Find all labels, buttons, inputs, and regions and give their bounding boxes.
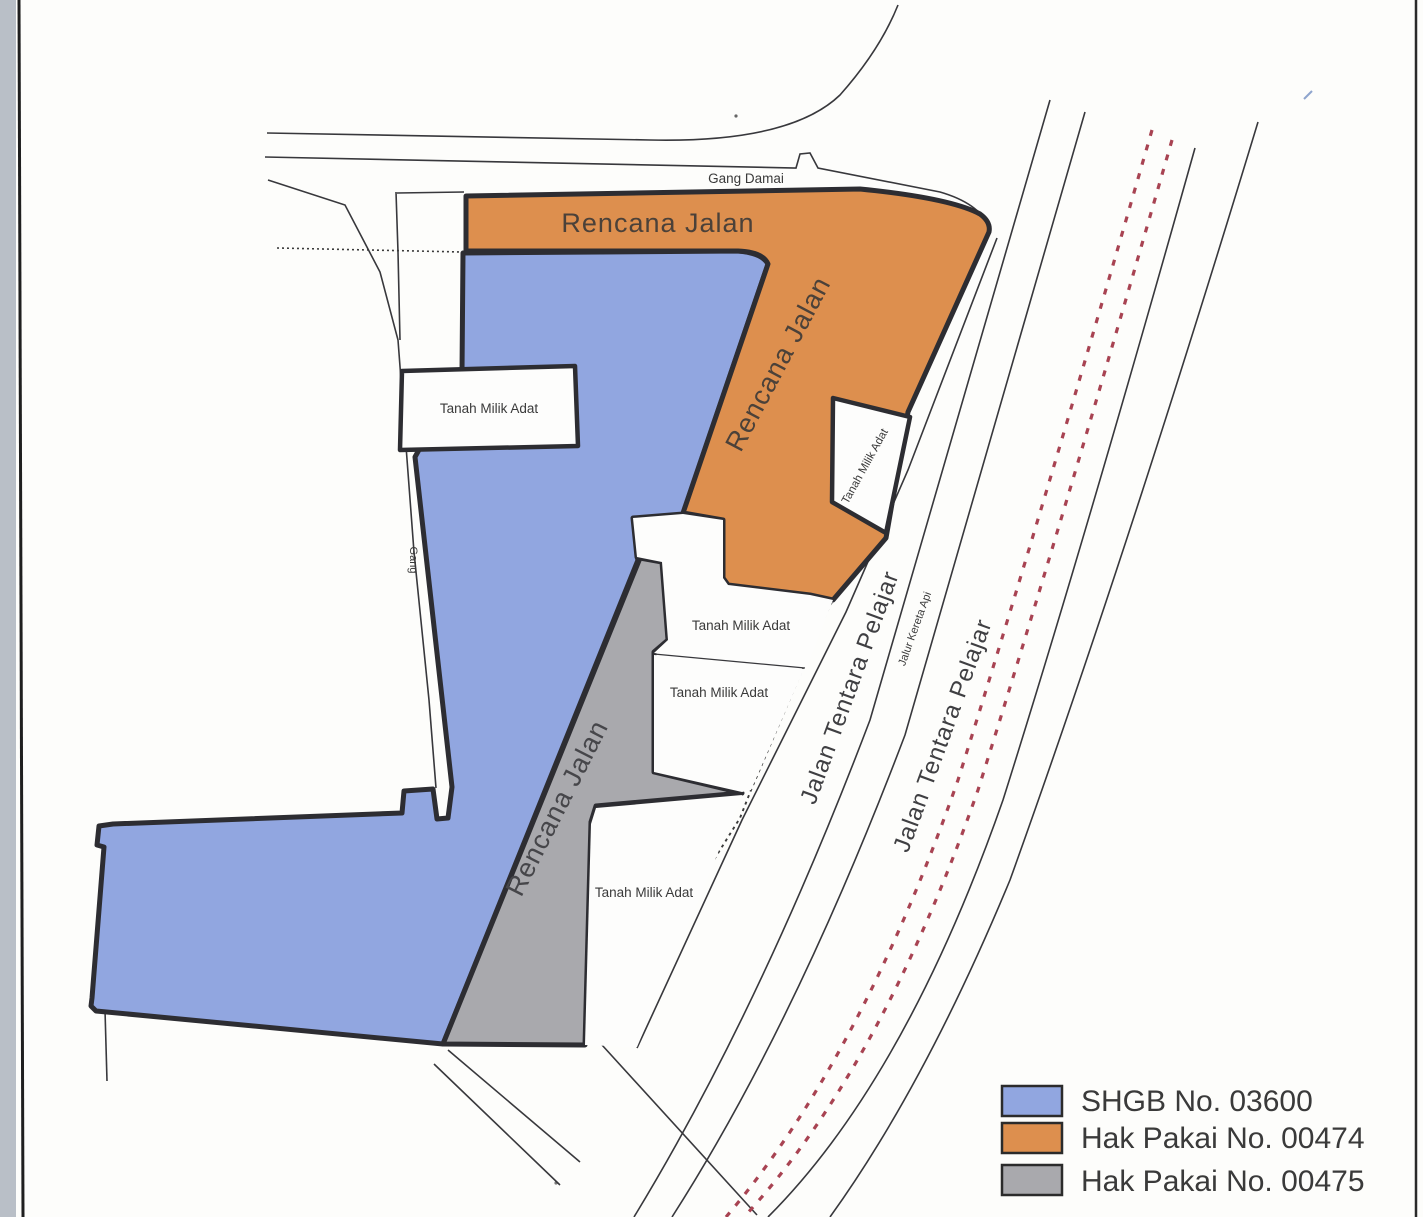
road-connector-line [397, 192, 464, 193]
legend-item-hak-pakai-00475: Hak Pakai No. 00475 [1002, 1165, 1365, 1198]
legend-item-hak-pakai-00474: Hak Pakai No. 00474 [1002, 1122, 1365, 1155]
scan-speck [1304, 91, 1312, 99]
label-gang: Gang [407, 547, 419, 574]
road-gang-west-line [268, 180, 436, 788]
scan-speck [734, 114, 737, 117]
scan-left-line [19, 0, 23, 1217]
parcel-tanah-3 [585, 795, 742, 1047]
legend-swatch-blue [1002, 1086, 1062, 1116]
label-tanah-box: Tanah Milik Adat [440, 401, 539, 416]
scan-left-bar [0, 0, 16, 1217]
map-canvas: Gang Damai Rencana Jalan Rencana Jalan R… [0, 0, 1423, 1217]
road-bottom-diag-3 [602, 1045, 757, 1215]
legend-label-00474: Hak Pakai No. 00474 [1081, 1122, 1365, 1155]
label-gang-damai: Gang Damai [708, 171, 784, 186]
legend-label-00475: Hak Pakai No. 00475 [1081, 1165, 1365, 1198]
label-tanah-3: Tanah Milik Adat [595, 885, 694, 900]
road-top-line [267, 5, 898, 140]
label-rencana-jalan-top: Rencana Jalan [561, 208, 754, 238]
parcel-tanah-2 [654, 655, 804, 792]
road-bottom-diag-1 [448, 1050, 580, 1162]
road-bottom-left-line [105, 1010, 107, 1081]
road-bottom-diag-2 [434, 1064, 560, 1185]
scanned-land-plot-map: Gang Damai Rencana Jalan Rencana Jalan R… [0, 0, 1423, 1217]
legend: SHGB No. 03600 Hak Pakai No. 00474 Hak P… [1002, 1085, 1365, 1198]
legend-label-shgb: SHGB No. 03600 [1081, 1085, 1313, 1118]
land-regions [91, 189, 989, 1045]
legend-swatch-gray [1002, 1165, 1062, 1195]
label-tanah-1: Tanah Milik Adat [692, 618, 791, 633]
label-tanah-2: Tanah Milik Adat [670, 685, 769, 700]
road-gang-east-line [396, 192, 400, 340]
legend-swatch-orange [1002, 1123, 1062, 1153]
legend-item-shgb: SHGB No. 03600 [1002, 1085, 1313, 1118]
